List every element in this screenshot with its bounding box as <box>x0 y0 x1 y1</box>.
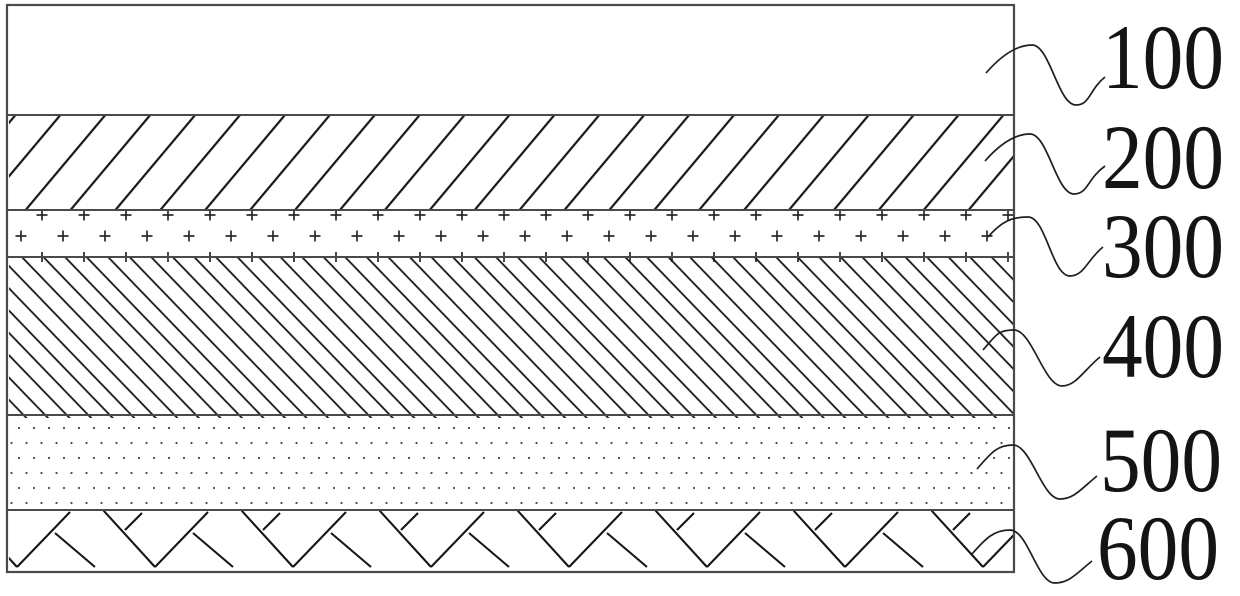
layer-region-300 <box>9 210 1013 262</box>
figure-canvas: 100 200 300 400 500 600 <box>0 0 1240 596</box>
layer-label-100: 100 <box>1102 6 1224 108</box>
layer-region-200 <box>9 115 1013 210</box>
layer-regions <box>9 6 1013 571</box>
layer-region-600 <box>9 510 1013 571</box>
layer-region-100 <box>9 6 1013 114</box>
layer-region-500 <box>9 415 1013 510</box>
layer-label-600: 600 <box>1097 497 1219 596</box>
layer-region-400 <box>9 257 1013 418</box>
reference-labels: 100 200 300 400 500 600 <box>1097 6 1224 596</box>
layer-label-200: 200 <box>1102 106 1224 208</box>
layer-stack-diagram: 100 200 300 400 500 600 <box>0 0 1240 596</box>
layer-label-300: 300 <box>1102 195 1224 297</box>
layer-label-500: 500 <box>1100 409 1222 511</box>
layer-label-400: 400 <box>1102 295 1224 397</box>
